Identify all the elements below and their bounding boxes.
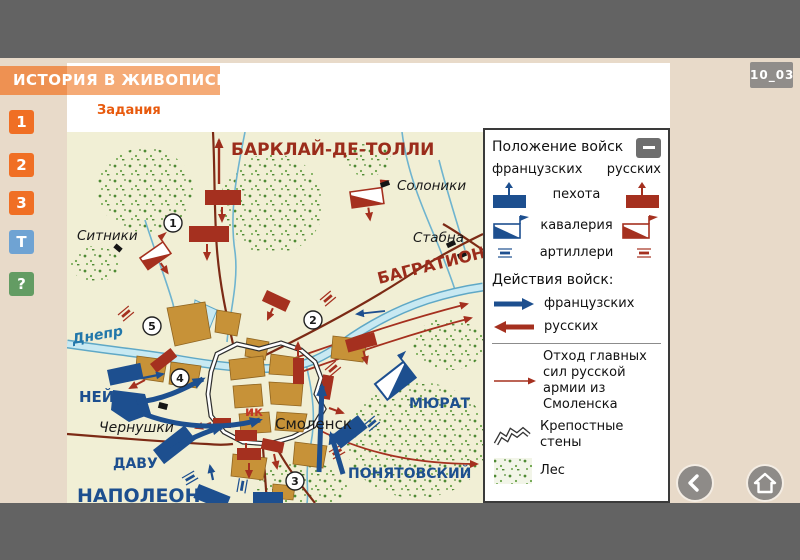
retreat-label: Отход главных сил русской армии из Смоле… <box>543 349 659 412</box>
label-bagration: БАГРАТИОН <box>375 243 487 288</box>
svg-text:4: 4 <box>176 372 184 385</box>
artillery-label: артиллери <box>540 245 614 261</box>
walls-label: Крепостные стены <box>540 419 652 451</box>
russian-artillery-icon <box>631 246 661 260</box>
label-murat: МЮРАТ <box>409 396 470 412</box>
svg-text:5: 5 <box>148 320 156 333</box>
label-napoleon: НАПОЛЕОН <box>77 485 200 503</box>
infantry-label: пехота <box>553 187 601 203</box>
label-soloniki: Солоники <box>397 178 466 194</box>
legend-row-forest: Лес <box>492 457 661 485</box>
bottom-frame-bar <box>0 503 800 560</box>
top-frame-bar <box>0 0 800 58</box>
lesson-code-badge: 10_03 <box>750 62 793 88</box>
label-chernushki: Чернушки <box>99 420 174 436</box>
legend-row-artillery: артиллери <box>492 242 661 264</box>
marker-5: 5 <box>143 317 161 335</box>
legend-col-french: французских <box>492 162 582 178</box>
legend-row-russian-action: русских <box>492 315 661 338</box>
home-button[interactable] <box>748 466 782 500</box>
marker-2: 2 <box>304 311 322 329</box>
legend-divider <box>492 343 661 344</box>
task-1-button[interactable]: 1 <box>9 110 34 134</box>
french-action-arrow-icon <box>492 297 536 311</box>
label-wall-fragment: ик <box>245 405 263 420</box>
label-barclay: БАРКЛАЙ-ДЕ-ТОЛЛИ <box>231 138 434 160</box>
russian-action-label: русских <box>544 319 598 335</box>
svg-text:1: 1 <box>169 217 177 230</box>
legend-title: Положение войск <box>492 139 623 156</box>
help-button[interactable]: ? <box>9 272 34 296</box>
legend-row-french-action: французских <box>492 292 661 315</box>
russian-cavalry-icon <box>621 213 661 240</box>
task-2-button[interactable]: 2 <box>9 153 34 177</box>
french-action-label: французских <box>544 296 634 312</box>
french-infantry-icon <box>492 182 528 209</box>
label-ney: НЕЙ <box>79 387 114 406</box>
label-sitniki: Ситники <box>77 228 138 244</box>
app-header-band: ИСТОРИЯ В ЖИВОПИСИ <box>0 66 220 95</box>
svg-text:3: 3 <box>291 475 299 488</box>
back-button[interactable] <box>678 466 712 500</box>
marker-4: 4 <box>171 369 189 387</box>
map-legend: Положение войск французских русских пехо… <box>483 128 670 503</box>
chevron-left-icon <box>683 471 707 495</box>
russian-action-arrow-icon <box>492 320 536 334</box>
app-title: ИСТОРИЯ В ЖИВОПИСИ <box>13 71 229 89</box>
marker-1: 1 <box>164 214 182 232</box>
label-poniatowski: ПОНЯТОВСКИЙ <box>348 465 471 482</box>
legend-actions-title: Действия войск: <box>492 272 661 289</box>
svg-text:2: 2 <box>309 314 317 327</box>
marker-3: 3 <box>286 472 304 490</box>
forest-label: Лес <box>540 463 565 479</box>
text-button[interactable]: T <box>9 230 34 254</box>
task-3-button[interactable]: 3 <box>9 191 34 215</box>
french-cavalry-icon <box>492 213 532 240</box>
collapse-legend-button[interactable] <box>636 138 661 158</box>
retreat-arrow-icon <box>492 376 538 386</box>
legend-row-walls: Крепостные стены <box>492 419 661 451</box>
label-davout: ДАВУ <box>113 456 158 472</box>
label-smolensk: Смоленск <box>275 415 352 433</box>
fortress-walls-icon <box>492 420 534 450</box>
cavalry-label: кавалерия <box>540 218 612 234</box>
label-stabna: Стабна <box>413 230 464 246</box>
french-artillery-icon <box>492 246 522 260</box>
russian-infantry-icon <box>625 182 661 209</box>
legend-row-retreat: Отход главных сил русской армии из Смоле… <box>492 349 661 412</box>
french-river-arrow <box>357 311 385 314</box>
section-label: Задания <box>97 103 161 118</box>
forest-icon <box>492 457 534 485</box>
legend-row-cavalry: кавалерия <box>492 211 661 242</box>
legend-col-russian: русских <box>607 162 661 178</box>
minus-icon <box>643 146 655 149</box>
home-icon <box>752 470 778 496</box>
legend-row-infantry: пехота <box>492 180 661 211</box>
